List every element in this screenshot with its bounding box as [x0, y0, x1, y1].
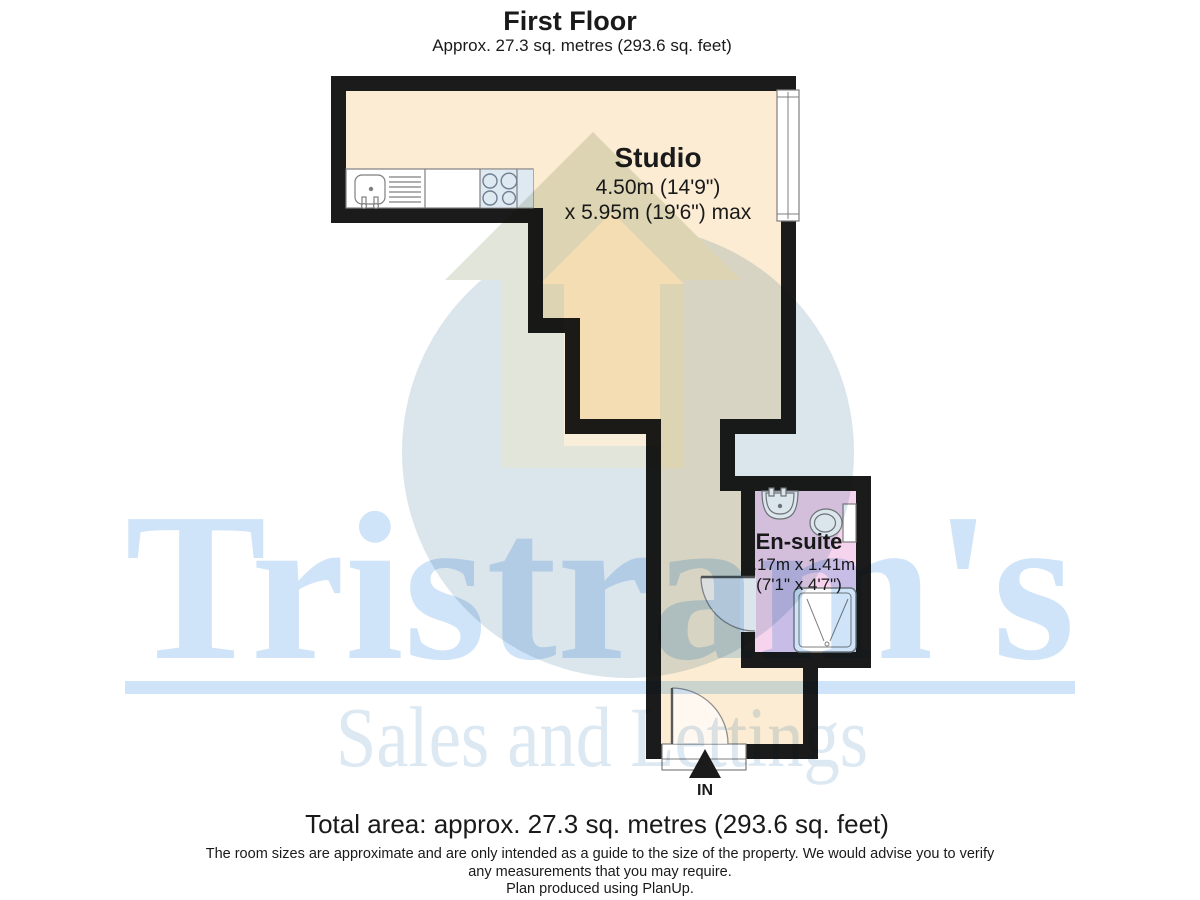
watermark-tagline: Sales and Lettings	[336, 689, 868, 785]
window-icon	[777, 90, 799, 221]
page-title: First Floor	[503, 6, 637, 36]
kitchen-counter-icon	[346, 169, 533, 208]
floorplan-page: First Floor Approx. 27.3 sq. metres (293…	[0, 0, 1200, 900]
watermark-brand: Tristram's	[125, 469, 1075, 704]
disclaimer-line-1: The room sizes are approximate and are o…	[206, 846, 995, 862]
kitchen-sink-icon	[355, 175, 385, 208]
total-area-text: Total area: approx. 27.3 sq. metres (293…	[305, 809, 889, 839]
floorplan-canvas: First Floor Approx. 27.3 sq. metres (293…	[0, 0, 1200, 900]
disclaimer-line-3: Plan produced using PlanUp.	[506, 881, 694, 897]
disclaimer-line-2: any measurements that you may require.	[468, 864, 732, 880]
page-subtitle: Approx. 27.3 sq. metres (293.6 sq. feet)	[432, 36, 732, 55]
